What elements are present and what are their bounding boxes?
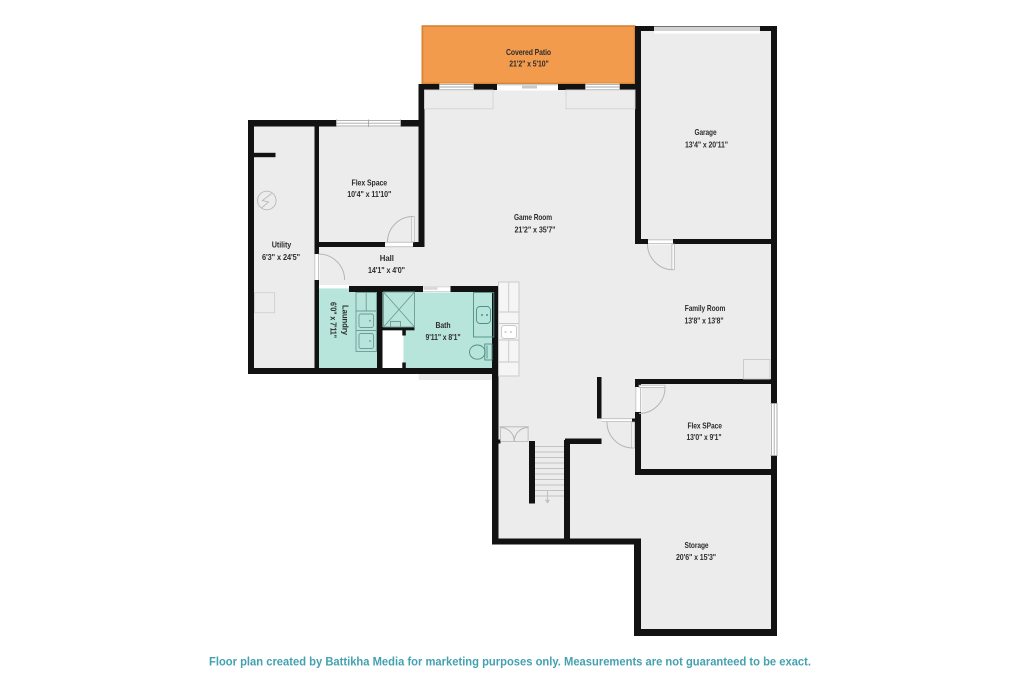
svg-text:Floor plan created by Battikha: Floor plan created by Battikha Media for… [209, 654, 811, 668]
svg-text:Garage: Garage [695, 127, 717, 137]
svg-text:14'1" x 4'0": 14'1" x 4'0" [368, 266, 405, 275]
svg-text:20'6" x 15'3": 20'6" x 15'3" [676, 553, 716, 562]
svg-text:Covered Patio: Covered Patio [506, 47, 551, 57]
svg-text:9'11" x 8'1": 9'11" x 8'1" [426, 333, 461, 342]
svg-text:10'4" x 11'10": 10'4" x 11'10" [347, 190, 391, 199]
svg-text:Game Room: Game Room [514, 212, 552, 222]
svg-text:6'0" x 7'11": 6'0" x 7'11" [329, 302, 338, 338]
svg-text:13'8" x 13'8": 13'8" x 13'8" [685, 316, 724, 325]
svg-text:21'2" x 5'10": 21'2" x 5'10" [509, 60, 549, 69]
svg-text:6'3" x 24'5": 6'3" x 24'5" [262, 253, 300, 262]
svg-text:13'0" x 9'1": 13'0" x 9'1" [687, 433, 722, 442]
svg-text:Family Room: Family Room [685, 303, 726, 313]
svg-text:Flex Space: Flex Space [352, 177, 388, 187]
svg-text:Hall: Hall [380, 253, 394, 263]
svg-text:Storage: Storage [685, 540, 709, 550]
svg-text:21'2" x 35'7": 21'2" x 35'7" [515, 225, 556, 234]
svg-text:Flex SPace: Flex SPace [687, 421, 722, 431]
svg-text:13'4" x 20'11": 13'4" x 20'11" [685, 140, 728, 149]
svg-text:Utility: Utility [272, 240, 292, 250]
svg-text:Laundry: Laundry [341, 305, 351, 335]
svg-text:Bath: Bath [436, 320, 451, 330]
